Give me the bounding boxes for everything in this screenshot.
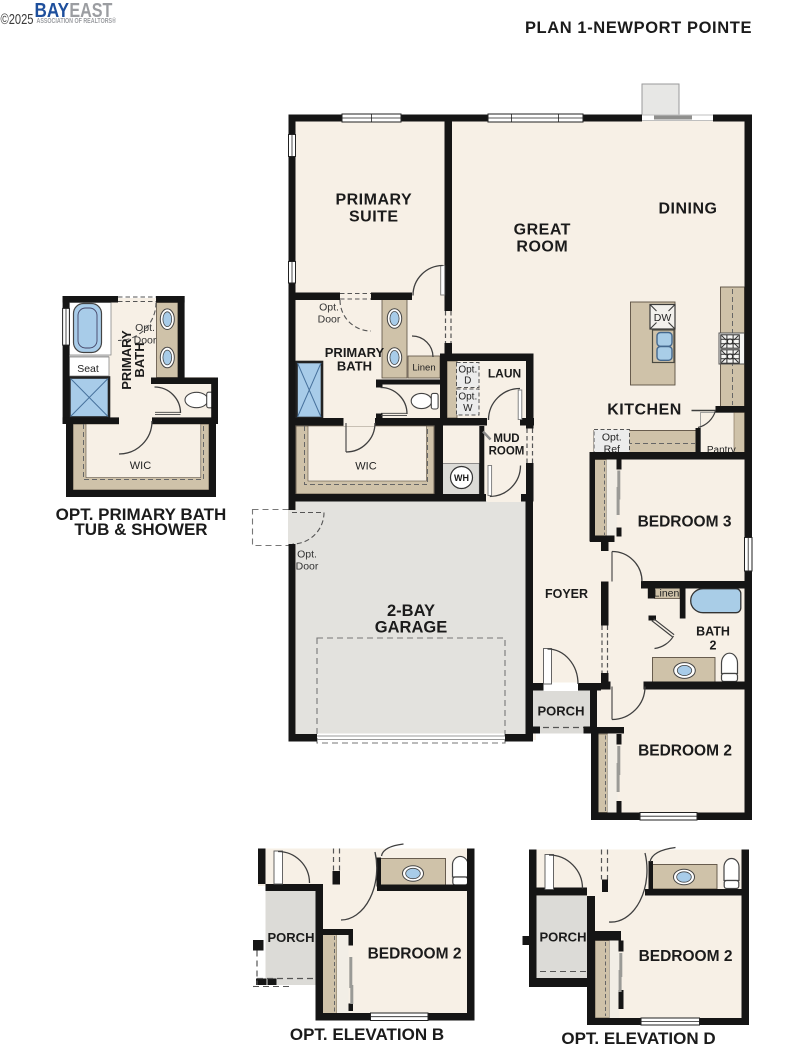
svg-text:©2025: ©2025 bbox=[1, 11, 34, 28]
svg-text:DW: DW bbox=[654, 312, 672, 324]
svg-text:Linen: Linen bbox=[654, 588, 680, 600]
svg-text:PORCH: PORCH bbox=[268, 930, 315, 945]
svg-text:BATH: BATH bbox=[132, 342, 147, 377]
svg-text:Opt.: Opt. bbox=[135, 322, 155, 334]
svg-text:BATH: BATH bbox=[337, 359, 372, 374]
svg-text:2: 2 bbox=[710, 639, 717, 653]
svg-text:WIC: WIC bbox=[355, 461, 376, 473]
svg-text:W: W bbox=[463, 403, 473, 414]
svg-text:Linen: Linen bbox=[412, 363, 435, 374]
svg-text:BATH: BATH bbox=[696, 625, 730, 639]
svg-text:D: D bbox=[464, 376, 471, 387]
svg-text:2-BAY: 2-BAY bbox=[387, 602, 435, 620]
svg-text:OPT. ELEVATION B: OPT. ELEVATION B bbox=[290, 1025, 444, 1044]
svg-text:WIC: WIC bbox=[130, 460, 151, 472]
svg-text:BEDROOM 2: BEDROOM 2 bbox=[638, 743, 732, 760]
svg-text:OPT. ELEVATION D: OPT. ELEVATION D bbox=[561, 1029, 715, 1048]
svg-text:PORCH: PORCH bbox=[540, 930, 587, 945]
svg-text:PORCH: PORCH bbox=[538, 704, 585, 719]
svg-text:DINING: DINING bbox=[659, 201, 718, 218]
svg-text:Door: Door bbox=[296, 561, 319, 573]
svg-text:FOYER: FOYER bbox=[545, 587, 588, 601]
svg-text:Opt.: Opt. bbox=[602, 432, 622, 444]
svg-text:BEDROOM 2: BEDROOM 2 bbox=[368, 946, 462, 963]
svg-text:Opt.: Opt. bbox=[458, 392, 477, 403]
svg-text:Opt.: Opt. bbox=[458, 365, 477, 376]
svg-text:MUD: MUD bbox=[493, 433, 519, 445]
svg-text:SUITE: SUITE bbox=[349, 209, 399, 226]
svg-text:WH: WH bbox=[454, 473, 469, 483]
svg-text:Seat: Seat bbox=[77, 363, 99, 375]
svg-text:GREAT: GREAT bbox=[514, 222, 571, 239]
svg-text:LAUN: LAUN bbox=[488, 367, 521, 381]
svg-text:ROOM: ROOM bbox=[489, 446, 525, 458]
svg-text:Door: Door bbox=[318, 314, 341, 326]
svg-text:ASSOCIATION OF REALTORS®: ASSOCIATION OF REALTORS® bbox=[37, 17, 117, 25]
svg-text:ROOM: ROOM bbox=[516, 239, 568, 256]
svg-text:Opt.: Opt. bbox=[319, 302, 339, 314]
svg-text:GARAGE: GARAGE bbox=[375, 619, 447, 637]
svg-text:TUB & SHOWER: TUB & SHOWER bbox=[74, 520, 207, 539]
svg-text:KITCHEN: KITCHEN bbox=[607, 402, 682, 419]
svg-text:BEDROOM 3: BEDROOM 3 bbox=[638, 514, 732, 531]
svg-text:BEDROOM 2: BEDROOM 2 bbox=[639, 948, 733, 965]
svg-text:Opt.: Opt. bbox=[297, 549, 317, 561]
svg-text:PRIMARY: PRIMARY bbox=[335, 192, 412, 209]
svg-text:PLAN 1-NEWPORT POINTE: PLAN 1-NEWPORT POINTE bbox=[525, 19, 752, 37]
